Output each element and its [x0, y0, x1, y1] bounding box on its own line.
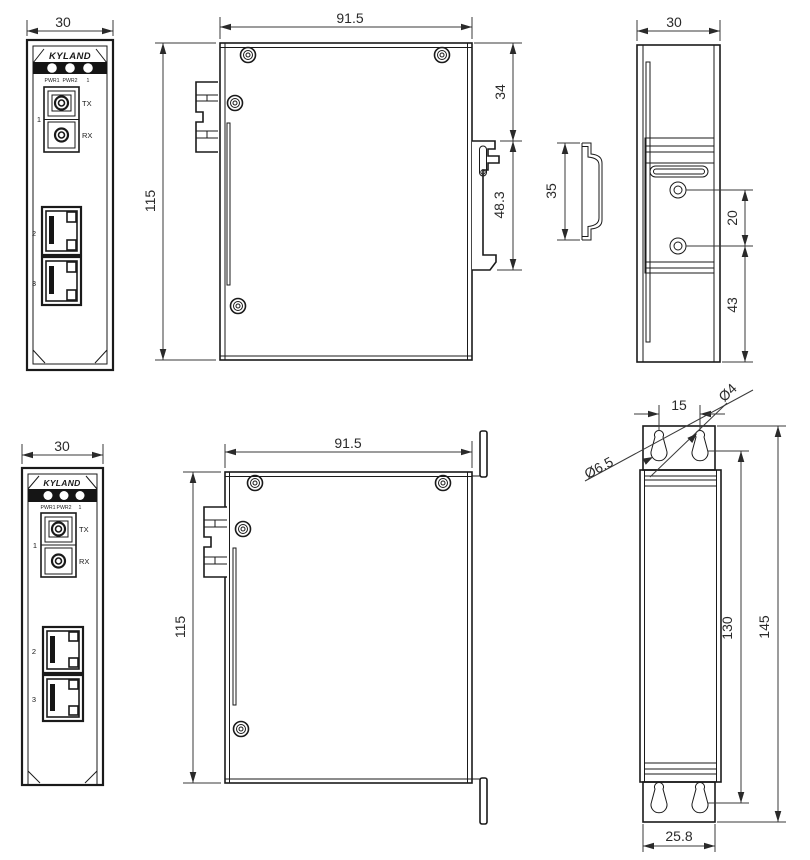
dim-label-bracket-width: 25.8 — [665, 828, 692, 844]
dim-front-width-din: 30 — [27, 14, 113, 36]
led-indicator-port1 — [83, 63, 93, 73]
port3-label: 3 — [32, 279, 36, 288]
panel-edge-strip — [233, 548, 236, 705]
brand-logo: KYLAND — [49, 51, 91, 62]
screw-hole — [670, 238, 686, 254]
rj45-port-3 — [43, 675, 83, 721]
dim-front-width-wall: 30 — [22, 438, 103, 464]
dim-depth-wall: 91.5 — [225, 435, 472, 468]
led-label-pwr1: PWR1 — [41, 505, 56, 511]
led-indicator-pwr2 — [65, 63, 75, 73]
keyhole-slot — [651, 430, 667, 460]
dim-hole-to-bottom: 43 — [722, 246, 753, 362]
screw-icon — [241, 48, 256, 63]
led-indicator-pwr2 — [60, 491, 69, 500]
dim-hole-span: 130 — [708, 451, 749, 803]
fiber-port-number: 1 — [33, 541, 37, 550]
rj45-port-2 — [42, 207, 81, 255]
dim-label-large-hole-dia: Ø6.5 — [581, 453, 615, 481]
dim-label-hole-span: 130 — [719, 616, 735, 640]
port3-label: 3 — [32, 695, 36, 704]
screw-icon — [234, 722, 249, 737]
technical-drawing-page: KYLAND PWR1 PWR2 1 1 TX RX 2 — [0, 0, 810, 860]
wall-bracket-flange-bottom — [472, 778, 487, 824]
rear-body-outline — [640, 470, 721, 782]
led-label-pwr2: PWR2 — [57, 505, 72, 511]
terminal-block — [204, 507, 227, 577]
screw-icon — [248, 476, 263, 491]
dim-label-rail-height: 35 — [543, 183, 559, 199]
screw-icon — [435, 48, 450, 63]
rj45-port-3 — [42, 257, 81, 305]
dim-rail-height: 35 — [543, 143, 580, 240]
dim-bracket-width: 25.8 — [643, 824, 715, 852]
led-indicator-pwr1 — [44, 491, 53, 500]
rx-label: RX — [79, 557, 89, 566]
tx-label: TX — [79, 525, 89, 534]
screw-icon — [228, 96, 243, 111]
fiber-port-number: 1 — [37, 115, 41, 124]
port2-label: 2 — [32, 647, 36, 656]
led-indicator-port1 — [76, 491, 85, 500]
front-view-wall: KYLAND PWR1 PWR2 1 1 TX RX 2 — [22, 438, 103, 785]
dim-label-height-din: 115 — [142, 190, 158, 213]
dim-label-clip-length: 48.3 — [491, 191, 507, 218]
led-label-port1: 1 — [87, 78, 90, 84]
din-mounting-plate — [645, 138, 714, 273]
dimension-drawing: KYLAND PWR1 PWR2 1 1 TX RX 2 — [0, 0, 810, 860]
dim-small-hole-dia: Ø4 — [650, 380, 740, 477]
din-rail-profile: 35 — [543, 143, 602, 240]
dim-depth-din: 91.5 — [220, 10, 472, 39]
spring-slot — [650, 166, 708, 177]
dim-label-front-width-din: 30 — [55, 14, 71, 30]
screw-icon — [231, 299, 246, 314]
dim-clip-offset: 34 — [474, 43, 522, 141]
panel-edge-strip — [227, 123, 230, 285]
dim-label-hole-to-bottom: 43 — [724, 297, 740, 313]
side-body-outline — [220, 43, 472, 360]
front-view-din: KYLAND PWR1 PWR2 1 1 TX RX 2 — [27, 14, 113, 370]
led-label-port1: 1 — [79, 505, 82, 511]
dim-label-hole-spacing: 20 — [724, 210, 740, 226]
dim-label-clip-offset: 34 — [492, 84, 508, 100]
screw-icon — [236, 522, 251, 537]
dim-label-overall-height: 145 — [756, 615, 772, 639]
sc-connector-rx — [48, 122, 75, 148]
fiber-port-module — [41, 513, 76, 577]
screw-icon — [436, 476, 451, 491]
led-label-pwr2: PWR2 — [63, 78, 78, 84]
dim-label-rear-width-din: 30 — [666, 14, 682, 30]
port2-label: 2 — [32, 229, 36, 238]
keyhole-slot — [651, 782, 667, 812]
side-body-outline — [225, 472, 472, 783]
brand-logo: KYLAND — [43, 478, 80, 488]
rear-view-din: 30 20 43 — [637, 14, 753, 362]
keyhole-slot — [692, 782, 708, 812]
wall-bracket-flange-top — [472, 431, 487, 477]
dim-rear-width-din: 30 — [637, 14, 720, 41]
rj45-port-2 — [43, 627, 83, 673]
dim-label-small-hole-dia: Ø4 — [715, 380, 740, 405]
dim-label-height-wall: 115 — [172, 616, 188, 639]
led-label-pwr1: PWR1 — [45, 78, 60, 84]
tx-label: TX — [82, 99, 92, 108]
terminal-block — [196, 82, 218, 152]
screw-hole — [670, 182, 686, 198]
sc-connector-rx — [45, 548, 72, 574]
side-view-wall: 91.5 115 — [172, 431, 487, 824]
rear-view-wall: 15 Ø4 Ø6.5 130 145 25.8 — [581, 380, 786, 852]
dim-large-hole-dia: Ø6.5 — [581, 390, 753, 482]
dim-label-depth-wall: 91.5 — [334, 435, 361, 451]
side-view-din: 91.5 115 34 48.3 — [142, 10, 522, 360]
led-indicator-pwr1 — [47, 63, 57, 73]
device-body-outline — [27, 40, 113, 370]
rear-body-outline — [637, 45, 720, 362]
fiber-port-module — [44, 87, 79, 152]
dim-label-front-width-wall: 30 — [54, 438, 70, 454]
dim-label-depth-din: 91.5 — [336, 10, 363, 26]
rx-label: RX — [82, 131, 92, 140]
dim-label-keyhole-spacing: 15 — [671, 397, 687, 413]
